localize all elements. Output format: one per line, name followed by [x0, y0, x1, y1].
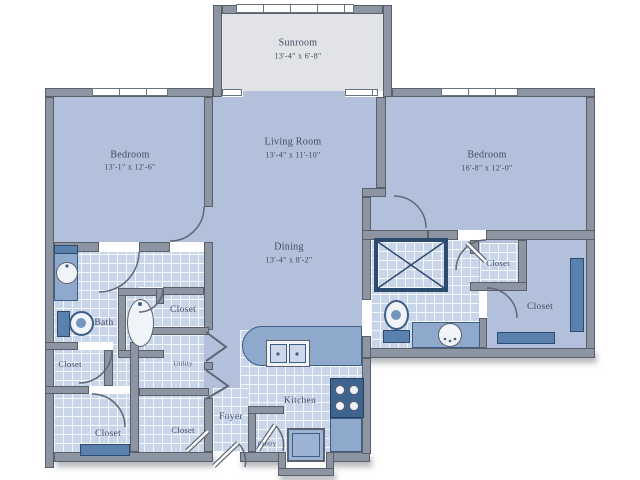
vanity-left-shelf [54, 245, 78, 254]
closet-shelf-right-east [570, 258, 584, 332]
wall-segment [45, 342, 78, 350]
wall-segment [376, 97, 386, 188]
area-label-utility: Utility [173, 361, 192, 368]
area-label-foyer: Foyer [219, 412, 243, 422]
room-dims-bedroom-right: 16'-8" x 12'-0" [461, 164, 512, 173]
wall-segment [479, 318, 487, 348]
wall-segment [240, 452, 282, 462]
wall-segment [130, 342, 139, 452]
stove-burner-2 [349, 385, 359, 395]
wall-segment [470, 282, 527, 291]
closet-shelf-left [80, 444, 130, 456]
doorway-opening [170, 242, 204, 252]
closet-label-foyer: Closet [171, 425, 195, 435]
area-label-kitchen: Kitchen [284, 396, 316, 406]
room-label-dining: Dining [274, 242, 304, 253]
room-label-bedroom-left: Bedroom [110, 150, 149, 161]
room-dims-living-room: 13'-4" x 11'-10" [265, 151, 320, 160]
room-label-bedroom-right: Bedroom [467, 150, 506, 161]
wall-segment [204, 398, 213, 452]
room-dims-sunroom: 13'-4" x 6'-8" [275, 52, 322, 61]
room-dims-bedroom-left: 13'-1" x 12'-6" [104, 163, 155, 172]
area-label-bath: Bath [94, 318, 113, 328]
sink-left-icon [56, 262, 78, 284]
doorway-opening [89, 386, 130, 394]
doorway-opening [213, 452, 240, 462]
doorway-opening [78, 342, 113, 350]
closet-label-left-small: Closet [58, 359, 82, 369]
kitchen-counter-south [330, 418, 362, 452]
wall-segment [139, 388, 209, 396]
wall-segment [362, 197, 371, 300]
wall-segment [139, 242, 170, 252]
room-dims-dining: 13'-4" x 8'-2" [266, 256, 313, 265]
closet-label-right-small: Closet [486, 258, 510, 268]
closet-label-left-walkin: Closet [95, 429, 121, 439]
toilet-right-tank [383, 330, 410, 343]
toilet-left-bowl [69, 311, 94, 336]
doorway-opening [362, 300, 371, 336]
stove-burner-4 [349, 401, 359, 411]
room-label-sunroom: Sunroom [279, 38, 318, 49]
wall-segment [362, 188, 386, 197]
sink-right-icon [438, 323, 462, 347]
wall-segment [362, 336, 371, 358]
wall-segment [104, 350, 113, 386]
window-icon [222, 89, 242, 96]
stove-burner-3 [335, 401, 345, 411]
wall-segment [118, 350, 164, 358]
wall-segment [248, 406, 284, 414]
closet-label-right-walkin: Closet [527, 302, 553, 312]
wall-segment [213, 5, 222, 97]
window-icon [92, 88, 168, 96]
wall-segment [45, 97, 54, 468]
stove-burner-1 [335, 385, 345, 395]
closet-label-hall: Closet [170, 305, 196, 315]
doorway-opening [458, 230, 486, 240]
window-icon [236, 4, 354, 13]
wall-segment [54, 452, 213, 462]
wall-segment [204, 362, 213, 370]
floor-plan: Sunroom 13'-4" x 6'-8" Bedroom 13'-1" x … [0, 0, 640, 480]
toilet-right-bowl [384, 300, 409, 330]
kitchen-sink-basin-left [270, 344, 287, 363]
area-label-pantry: Pantry [258, 441, 277, 448]
window-icon [441, 88, 518, 96]
wall-segment [486, 230, 595, 240]
shower-icon [374, 238, 448, 292]
wall-segment [586, 97, 595, 358]
wall-segment [204, 242, 213, 330]
wall-segment [470, 240, 479, 254]
wall-segment [362, 348, 595, 358]
refrigerator-icon [287, 428, 325, 462]
doorway-opening [99, 242, 139, 252]
room-label-living-room: Living Room [265, 137, 322, 148]
wall-segment [118, 288, 126, 358]
window-icon [345, 89, 378, 96]
wall-segment [383, 5, 392, 97]
closet-shelf-right-south [497, 332, 555, 344]
wall-segment [278, 468, 334, 476]
stove-icon [330, 378, 364, 418]
wall-segment [45, 386, 89, 394]
bathtub-icon [127, 299, 154, 347]
kitchen-sink-basin-right [289, 344, 306, 363]
wall-segment [204, 97, 213, 207]
wall-segment [163, 287, 204, 295]
